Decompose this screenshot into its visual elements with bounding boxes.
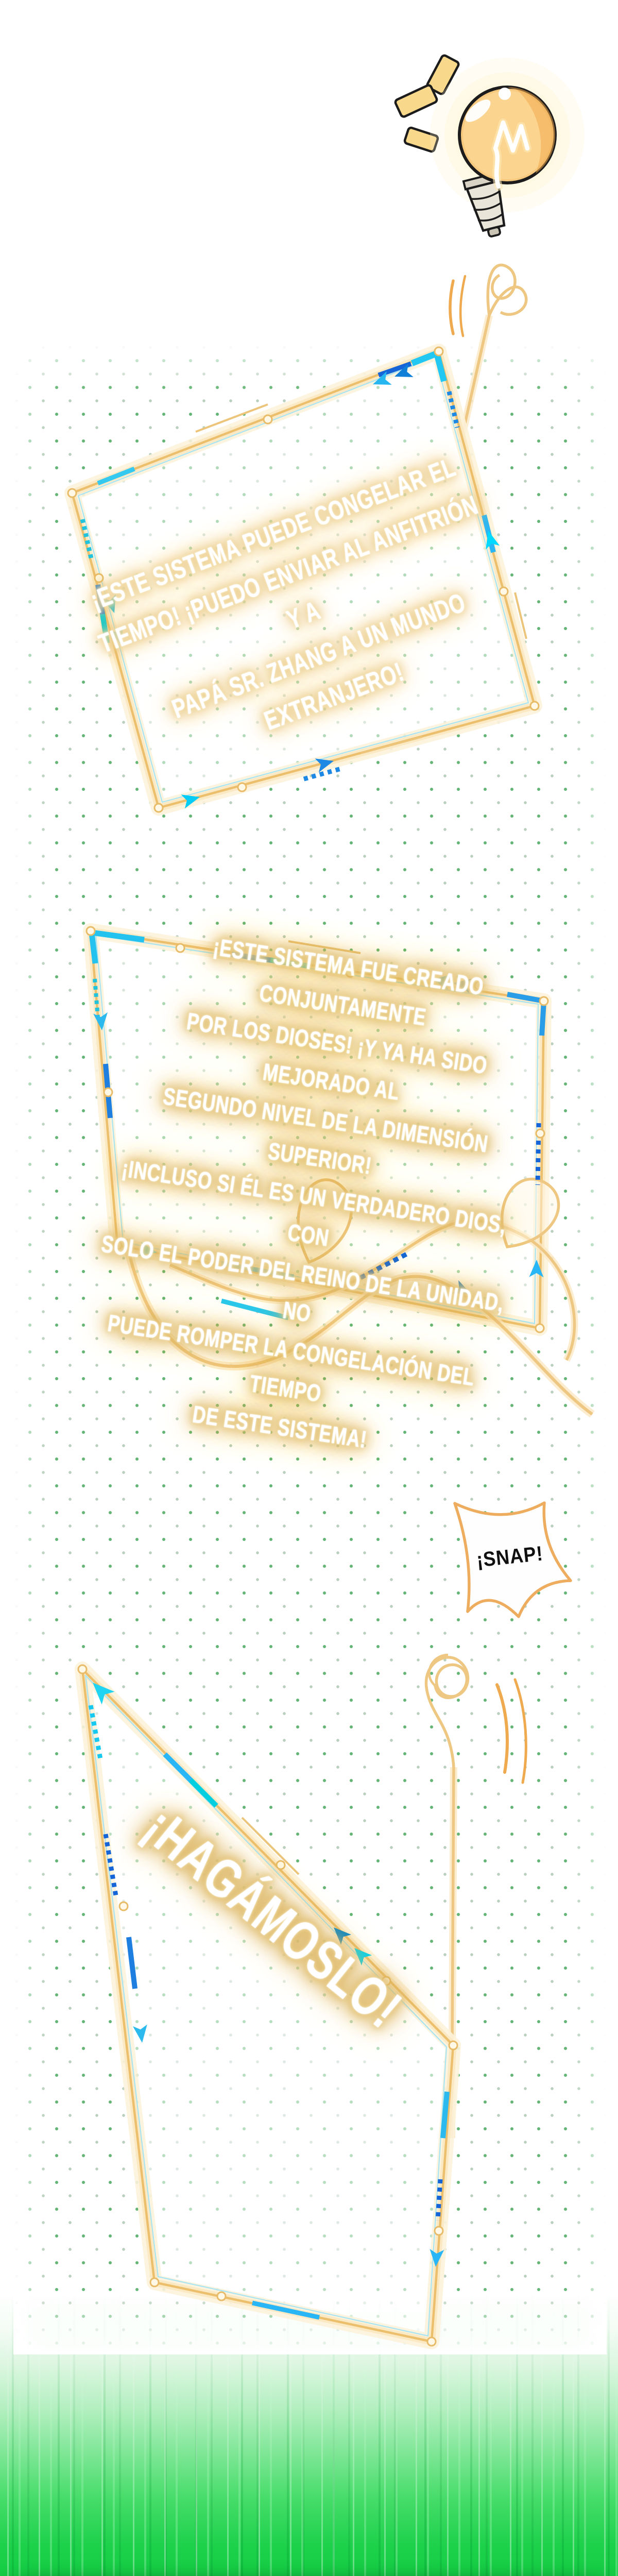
motion-lines-icon bbox=[497, 1680, 526, 1783]
motion-lines-icon bbox=[450, 276, 465, 336]
sprout-antenna-icon bbox=[462, 265, 526, 437]
dialog-text-2: ¡ESTE SISTEMA FUE CREADO CONJUNTAMENTE P… bbox=[73, 918, 555, 1477]
comic-page: ¡ESTE SISTEMA PUEDE CONGELAR EL TIEMPO! … bbox=[0, 0, 618, 2576]
system-panel-3-frame bbox=[78, 1655, 526, 2346]
lightbulb-icon bbox=[394, 55, 585, 240]
